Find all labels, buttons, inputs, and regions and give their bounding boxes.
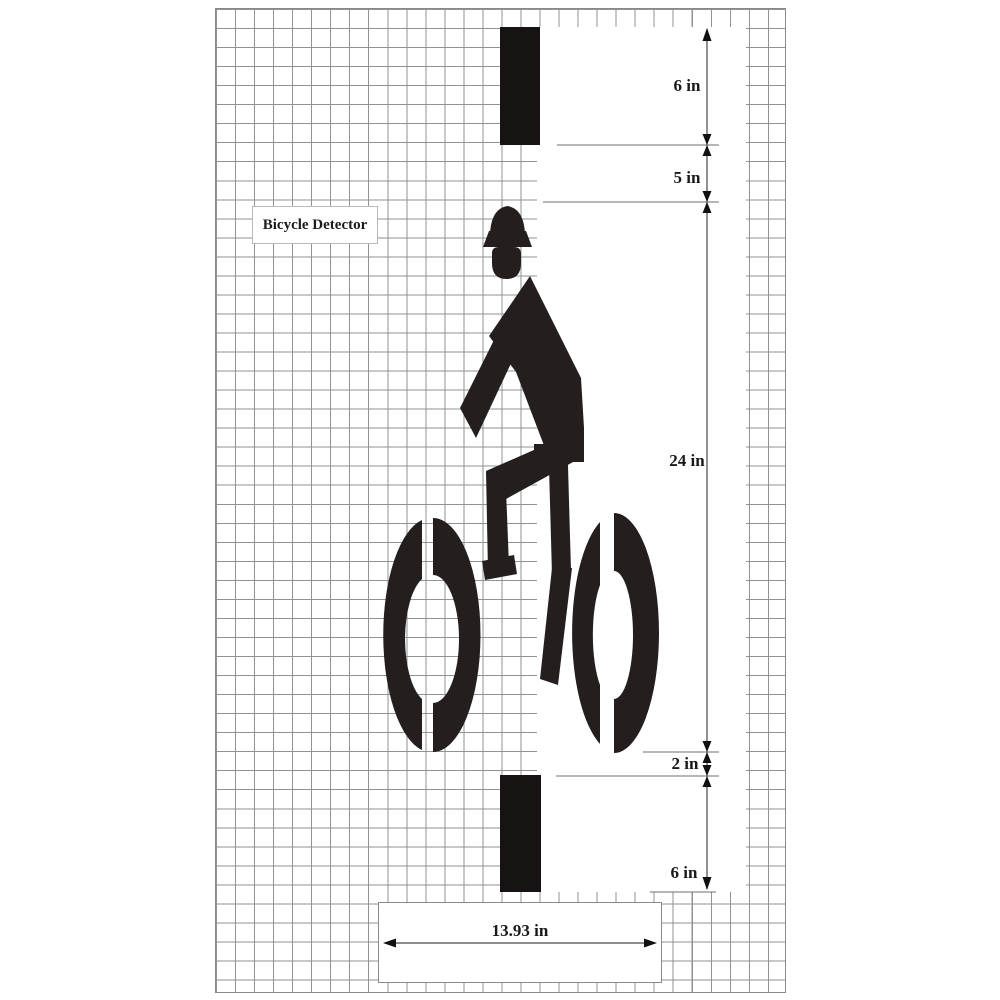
- stencil-dimension-diagram: Bicycle Detector: [0, 0, 1000, 1000]
- rear-wheel: [572, 513, 659, 753]
- rear-wheel-right-band: [614, 513, 659, 753]
- diagram-overlay: 6 in 5 in 24 in 2 in 6 in 13.93 in: [0, 0, 1000, 1000]
- rear-leg-shape: [548, 431, 571, 575]
- front-wheel-left-band: [383, 520, 422, 750]
- front-wheel: [383, 518, 480, 752]
- rear-wheel-left-band: [572, 522, 600, 744]
- dim-label-symbol-height: 24 in: [669, 451, 705, 470]
- helmet-brim-shape: [483, 231, 532, 247]
- arrow-left-icon: [383, 939, 396, 948]
- arrow-up-icon: [703, 28, 712, 41]
- front-wheel-right-band: [433, 518, 481, 752]
- dim-label-wheel-gap: 2 in: [672, 754, 699, 773]
- width-dimension: 13.93 in: [383, 921, 657, 948]
- bicycle-symbol: [383, 206, 659, 753]
- dim-label-helmet-gap: 5 in: [674, 168, 701, 187]
- dim-label-symbol-width: 13.93 in: [492, 921, 549, 940]
- head-shape: [492, 247, 521, 279]
- arrow-down-icon: [703, 877, 712, 890]
- arm-shape: [460, 308, 521, 438]
- rear-foot-shape: [540, 568, 572, 685]
- dim-label-bottom-bar: 6 in: [671, 863, 698, 882]
- front-foot-shape: [482, 555, 517, 580]
- arrow-right-icon: [644, 939, 657, 948]
- dim-label-top-bar: 6 in: [674, 76, 701, 95]
